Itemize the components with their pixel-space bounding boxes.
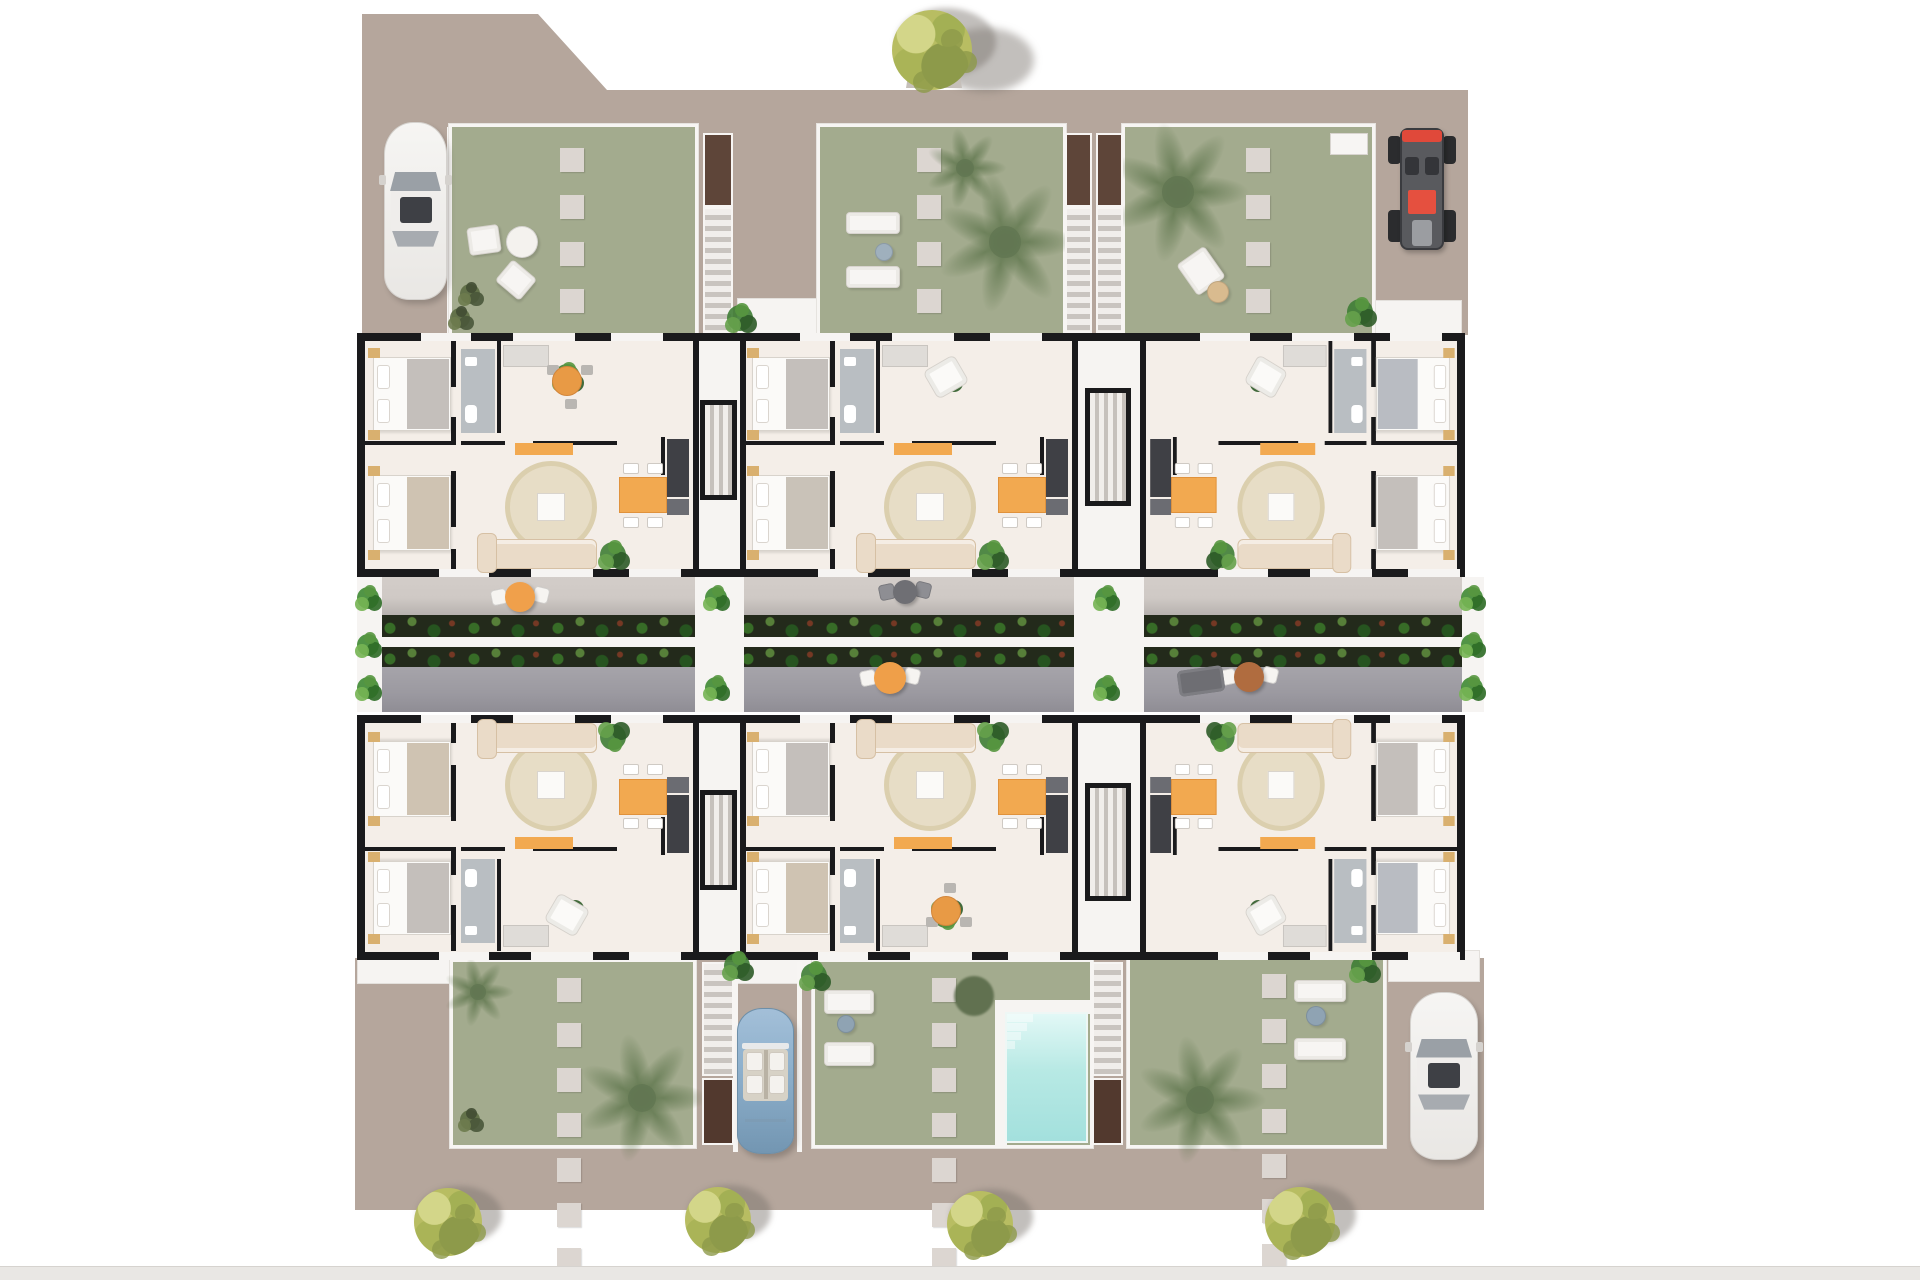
bed-pillow bbox=[1433, 519, 1445, 543]
sofa-side bbox=[856, 719, 876, 759]
dining-chair bbox=[1197, 517, 1212, 528]
terrace-plant-leaf bbox=[712, 585, 724, 597]
door-gap bbox=[531, 952, 593, 960]
terrace-walkway bbox=[357, 637, 1465, 647]
stepping-stone bbox=[557, 978, 581, 1002]
stepping-stone bbox=[917, 195, 941, 219]
walkway-plant-leaf bbox=[1345, 311, 1361, 327]
stepping-stone bbox=[932, 978, 956, 1002]
sofa-side bbox=[477, 719, 497, 759]
bed-pillow bbox=[377, 785, 390, 809]
car-trunk-line bbox=[745, 1119, 786, 1122]
interior-wall bbox=[876, 859, 880, 951]
kitchen-counter bbox=[667, 499, 689, 515]
door-gap bbox=[910, 569, 972, 577]
bed-pillow bbox=[756, 785, 769, 809]
tree-tuft bbox=[467, 1223, 486, 1242]
houseplant-leaf bbox=[612, 552, 630, 570]
terrace-plant-leaf bbox=[703, 687, 717, 701]
tree-tuft bbox=[964, 1241, 982, 1259]
bed-pillow bbox=[377, 869, 390, 893]
buggy-front-bar bbox=[1402, 130, 1442, 142]
dining-chair bbox=[623, 517, 639, 528]
bed-pillow bbox=[377, 365, 390, 389]
walkway-plant-leaf bbox=[732, 951, 746, 965]
stepping-stone bbox=[1262, 1109, 1286, 1133]
patio-chair bbox=[960, 917, 972, 927]
walkway-plant-leaf bbox=[735, 303, 749, 317]
bathroom-sink bbox=[844, 926, 856, 935]
stairs-bottom-1-landing bbox=[702, 1078, 734, 1145]
interior-wall bbox=[830, 341, 835, 387]
car-seat bbox=[746, 1052, 763, 1071]
sofa bbox=[862, 539, 976, 569]
bed-pillow bbox=[377, 749, 390, 773]
dining-chair bbox=[623, 764, 639, 775]
door-gap bbox=[892, 333, 954, 341]
patio-armchair bbox=[543, 892, 590, 938]
terrace-plant-leaf bbox=[1468, 675, 1480, 687]
bed-blanket bbox=[786, 863, 828, 933]
bed-pillow bbox=[756, 399, 769, 423]
bistro-table bbox=[893, 580, 917, 604]
interior-wall bbox=[1372, 847, 1457, 851]
bistro-table bbox=[1234, 662, 1264, 692]
nightstand bbox=[747, 816, 759, 826]
tv-sideboard bbox=[894, 837, 952, 849]
dining-table bbox=[998, 779, 1046, 815]
bed-blanket bbox=[1377, 863, 1417, 933]
houseplant-leaf bbox=[608, 540, 622, 554]
bed-pillow bbox=[1433, 903, 1445, 927]
palm-center bbox=[470, 984, 486, 1000]
garden-lounger bbox=[846, 266, 900, 288]
tree-tuft bbox=[702, 1237, 720, 1255]
car-console bbox=[764, 1050, 768, 1098]
kitchen-counter bbox=[1046, 795, 1068, 853]
door-gap bbox=[1008, 569, 1060, 577]
bathroom-toilet bbox=[1351, 405, 1362, 423]
garden-box bbox=[1330, 133, 1368, 155]
bed-blanket bbox=[407, 863, 449, 933]
bathroom-sink bbox=[1351, 357, 1362, 366]
bed-blanket bbox=[786, 359, 828, 429]
interior-wall bbox=[840, 441, 884, 445]
interior-wall bbox=[840, 847, 884, 851]
bathroom-toilet bbox=[844, 869, 856, 887]
unit-top-middle bbox=[744, 341, 1074, 569]
stepping-stone bbox=[1246, 289, 1270, 313]
nightstand bbox=[368, 852, 380, 862]
door-gap bbox=[439, 952, 489, 960]
nightstand bbox=[368, 732, 380, 742]
stepping-stone bbox=[560, 289, 584, 313]
stepping-stone bbox=[917, 289, 941, 313]
door-gap bbox=[1390, 715, 1442, 723]
garden-table bbox=[506, 226, 538, 258]
planter-strip bbox=[740, 615, 1074, 637]
door-gap bbox=[800, 333, 850, 341]
kitchen-counter bbox=[667, 777, 689, 793]
garden-plant-dry-leaf bbox=[469, 1118, 483, 1132]
door-gap bbox=[1408, 569, 1460, 577]
dining-table bbox=[998, 477, 1046, 513]
dining-chair bbox=[1026, 517, 1042, 528]
stepping-stone bbox=[557, 1068, 581, 1092]
bed-pillow bbox=[1433, 399, 1445, 423]
stepping-stone bbox=[1246, 195, 1270, 219]
bed-pillow bbox=[377, 519, 390, 543]
interior-wall bbox=[830, 723, 835, 743]
stairs-bottom-2-treads bbox=[1092, 962, 1123, 1076]
nightstand bbox=[368, 430, 380, 440]
garden-plant-leaf bbox=[1349, 967, 1365, 983]
door-gap bbox=[629, 952, 681, 960]
floor-plan-render: Top-down 3D render of a residential bloc… bbox=[0, 0, 1920, 1280]
tree-tuft bbox=[1283, 1240, 1303, 1260]
bed-blanket bbox=[1377, 359, 1417, 429]
dining-chair bbox=[1002, 517, 1018, 528]
white-car-top-left bbox=[384, 122, 447, 300]
garden-lounger bbox=[824, 1042, 874, 1066]
bed-blanket bbox=[1377, 477, 1417, 549]
interior-wall bbox=[1371, 471, 1376, 527]
bed-pillow bbox=[377, 903, 390, 927]
palm-center bbox=[1162, 176, 1193, 207]
terrace-plant-leaf bbox=[364, 632, 376, 644]
sofa bbox=[483, 723, 597, 753]
bed-pillow bbox=[756, 483, 769, 507]
houseplant-leaf bbox=[608, 738, 622, 752]
interior-wall bbox=[365, 847, 455, 851]
terrace-plant-leaf bbox=[712, 675, 724, 687]
interior-wall bbox=[830, 549, 835, 569]
kitchen-counter bbox=[1150, 777, 1171, 793]
kitchen-counter bbox=[1046, 777, 1068, 793]
car-sunroof bbox=[400, 197, 432, 224]
coffee-table bbox=[537, 493, 565, 521]
bottom-bar bbox=[0, 1266, 1920, 1280]
sofa bbox=[483, 539, 597, 569]
bathroom-sink bbox=[465, 357, 477, 366]
stepping-stone bbox=[1262, 1064, 1286, 1088]
stepping-stone bbox=[557, 1113, 581, 1137]
bed-pillow bbox=[1433, 869, 1445, 893]
terrace-plant-leaf bbox=[1102, 585, 1114, 597]
sofa bbox=[1237, 539, 1345, 569]
bathroom-sink bbox=[844, 357, 856, 366]
stairs-bottom-2-landing bbox=[1092, 1078, 1123, 1145]
nightstand bbox=[368, 466, 380, 476]
stepping-stone bbox=[560, 148, 584, 172]
dining-chair bbox=[1174, 463, 1189, 474]
houseplant-leaf bbox=[977, 722, 993, 738]
door-gap bbox=[990, 333, 1042, 341]
kitchen-counter bbox=[1046, 439, 1068, 497]
garden-plant-dry-leaf bbox=[448, 317, 461, 330]
patio-table bbox=[931, 896, 961, 926]
unit-top-right bbox=[1144, 341, 1457, 569]
garden-wall bbox=[797, 962, 802, 1152]
door-gap bbox=[1200, 333, 1250, 341]
terrace-plant-leaf bbox=[1471, 595, 1486, 610]
kitchen-counter bbox=[1150, 499, 1171, 515]
stepping-stone bbox=[557, 1158, 581, 1182]
dining-chair bbox=[647, 463, 663, 474]
dining-chair bbox=[1026, 764, 1042, 775]
bed-blanket bbox=[407, 359, 449, 429]
interior-wall bbox=[1324, 847, 1366, 851]
door-gap bbox=[611, 333, 663, 341]
interior-wall bbox=[744, 847, 834, 851]
garden-lounger bbox=[846, 212, 900, 234]
dining-chair bbox=[1174, 517, 1189, 528]
scene-layer bbox=[0, 0, 1920, 1280]
stairs-top-2-landing bbox=[1065, 133, 1092, 207]
coffee-table bbox=[537, 771, 565, 799]
houseplant-leaf bbox=[1221, 554, 1236, 570]
nightstand bbox=[1443, 934, 1454, 944]
unit-bottom-middle bbox=[744, 723, 1074, 951]
shrub bbox=[954, 976, 994, 1016]
terrace-plant-leaf bbox=[364, 675, 376, 687]
door-gap bbox=[910, 952, 972, 960]
garden-table bbox=[875, 243, 893, 261]
dining-chair bbox=[1002, 463, 1018, 474]
stepping-stone bbox=[932, 1068, 956, 1092]
stepping-stone bbox=[1262, 1154, 1286, 1178]
coffee-table bbox=[916, 771, 944, 799]
wardrobe bbox=[1282, 345, 1326, 367]
interior-wall bbox=[451, 549, 456, 569]
walkway bbox=[1374, 300, 1462, 334]
palm-center bbox=[956, 159, 974, 177]
door-gap bbox=[513, 715, 575, 723]
door-gap bbox=[421, 715, 471, 723]
nightstand bbox=[1443, 816, 1454, 826]
sofa-side bbox=[1332, 533, 1351, 573]
interior-wall bbox=[461, 847, 505, 851]
garden-plant-dry-leaf bbox=[459, 316, 473, 330]
door-gap bbox=[1390, 333, 1442, 341]
terrace-plant-leaf bbox=[355, 687, 369, 701]
nightstand bbox=[747, 732, 759, 742]
bed-pillow bbox=[756, 903, 769, 927]
bed-blanket bbox=[1377, 743, 1417, 815]
bathroom-toilet bbox=[1351, 869, 1362, 887]
dining-table bbox=[1171, 779, 1217, 815]
terrace-plant-leaf bbox=[1471, 642, 1486, 657]
sofa-side bbox=[477, 533, 497, 573]
bathroom-toilet bbox=[465, 405, 477, 423]
bathroom-sink bbox=[1351, 926, 1362, 935]
nightstand bbox=[1443, 466, 1454, 476]
nightstand bbox=[1443, 852, 1454, 862]
bathroom-toilet bbox=[465, 869, 477, 887]
door-gap bbox=[892, 715, 954, 723]
terrace-plant-leaf bbox=[1093, 687, 1107, 701]
stairs-top-3-treads bbox=[1096, 207, 1123, 333]
stepping-stone bbox=[560, 242, 584, 266]
nightstand bbox=[368, 816, 380, 826]
car-mirror bbox=[1476, 1042, 1483, 1052]
car-mirror bbox=[379, 175, 386, 185]
interior-wall bbox=[830, 847, 835, 875]
door-gap bbox=[629, 569, 681, 577]
stepping-stone bbox=[932, 1023, 956, 1047]
door-gap bbox=[421, 333, 471, 341]
pool-step bbox=[1007, 1023, 1027, 1031]
bathroom-toilet bbox=[844, 405, 856, 423]
nightstand bbox=[368, 934, 380, 944]
bistro-table bbox=[505, 582, 535, 612]
dining-chair bbox=[1197, 463, 1212, 474]
garden-lounger bbox=[1294, 980, 1346, 1002]
stepping-stone bbox=[1246, 148, 1270, 172]
garden-plant-leaf bbox=[1363, 965, 1381, 983]
walkway-plant-leaf bbox=[739, 315, 757, 333]
door-gap bbox=[1310, 952, 1372, 960]
interior-wall bbox=[1328, 341, 1332, 433]
planter-strip bbox=[740, 647, 1074, 667]
stepping-stone bbox=[932, 1113, 956, 1137]
bed-blanket bbox=[407, 743, 449, 815]
garden-plant-leaf bbox=[809, 961, 823, 975]
bed-pillow bbox=[756, 869, 769, 893]
bed-blanket bbox=[407, 477, 449, 549]
sofa bbox=[862, 723, 976, 753]
car-mirror bbox=[1405, 1042, 1412, 1052]
bed-pillow bbox=[756, 519, 769, 543]
planter-strip bbox=[1144, 615, 1462, 637]
tree-tuft bbox=[1320, 1223, 1340, 1243]
garden-lounger bbox=[466, 224, 502, 256]
car-windshield bbox=[1416, 1039, 1472, 1057]
stepping-stone bbox=[1262, 1019, 1286, 1043]
white-car-bottom-right bbox=[1410, 992, 1478, 1160]
blue-convertible-car bbox=[737, 1008, 794, 1154]
dining-chair bbox=[1174, 764, 1189, 775]
interior-wall bbox=[365, 441, 455, 445]
unit-bottom-right bbox=[1144, 723, 1457, 951]
buggy-seat bbox=[1405, 157, 1419, 175]
nightstand bbox=[747, 550, 759, 560]
stepping-stone bbox=[557, 1023, 581, 1047]
bed-blanket bbox=[786, 477, 828, 549]
dining-chair bbox=[1002, 764, 1018, 775]
houseplant-leaf bbox=[977, 554, 993, 570]
terrace-plant-leaf bbox=[1459, 687, 1473, 701]
nightstand bbox=[747, 852, 759, 862]
red-buggy bbox=[1388, 122, 1456, 258]
terrace-plant-leaf bbox=[355, 644, 369, 658]
door-gap bbox=[531, 569, 593, 577]
pool-step bbox=[1007, 1032, 1021, 1040]
stairs-top-1-landing bbox=[703, 133, 733, 207]
nightstand bbox=[1443, 550, 1454, 560]
tv-sideboard bbox=[1260, 443, 1315, 455]
dining-chair bbox=[647, 517, 663, 528]
stepping-stone bbox=[917, 242, 941, 266]
tree-tuft bbox=[455, 1204, 474, 1223]
tree-tuft bbox=[725, 1203, 743, 1221]
bed-pillow bbox=[377, 399, 390, 423]
interior-wall bbox=[830, 905, 835, 951]
walkway-plant-leaf bbox=[1355, 297, 1369, 311]
patio-armchair bbox=[922, 354, 969, 400]
dining-chair bbox=[1197, 764, 1212, 775]
dining-table bbox=[619, 477, 667, 513]
interior-wall bbox=[451, 765, 456, 821]
dining-chair bbox=[1002, 818, 1018, 829]
coffee-table bbox=[1267, 493, 1294, 521]
interior-wall bbox=[1371, 765, 1376, 821]
patio-table bbox=[552, 366, 582, 396]
sofa-side bbox=[1332, 719, 1351, 759]
buggy-tyre bbox=[1443, 136, 1456, 164]
terrace-plant-leaf bbox=[703, 597, 717, 611]
interior-wall bbox=[830, 765, 835, 821]
interior-wall bbox=[451, 847, 456, 875]
terrace-plant-leaf bbox=[1471, 685, 1486, 700]
bed-pillow bbox=[1433, 365, 1445, 389]
nightstand bbox=[747, 934, 759, 944]
nightstand bbox=[368, 348, 380, 358]
core-stairs bbox=[700, 400, 737, 500]
terrace-plant-leaf bbox=[1459, 644, 1473, 658]
kitchen-counter bbox=[667, 795, 689, 853]
door-gap bbox=[1218, 952, 1268, 960]
patio-armchair bbox=[1243, 354, 1288, 400]
terrace-plant-leaf bbox=[1102, 675, 1114, 687]
garden-lounger bbox=[1294, 1038, 1346, 1060]
bed-pillow bbox=[1433, 749, 1445, 773]
door-gap bbox=[1292, 333, 1354, 341]
bathroom-sink bbox=[465, 926, 477, 935]
terrace-plant-leaf bbox=[1468, 632, 1480, 644]
car-seat bbox=[769, 1075, 786, 1094]
nightstand bbox=[747, 430, 759, 440]
walkway-plant-leaf bbox=[725, 317, 741, 333]
dining-chair bbox=[623, 463, 639, 474]
wardrobe bbox=[1282, 925, 1326, 947]
terrace-plant-leaf bbox=[1468, 585, 1480, 597]
core-stairs bbox=[700, 790, 737, 890]
interior-wall bbox=[1371, 341, 1376, 387]
wardrobe bbox=[882, 925, 928, 947]
interior-wall bbox=[830, 471, 835, 527]
stairs-top-2-treads bbox=[1065, 207, 1092, 333]
bed-blanket bbox=[786, 743, 828, 815]
tv-sideboard bbox=[515, 837, 573, 849]
wardrobe bbox=[503, 345, 549, 367]
houseplant-leaf bbox=[1206, 552, 1223, 570]
unit-top-left bbox=[365, 341, 695, 569]
core-stairs bbox=[1085, 783, 1131, 901]
interior-wall bbox=[1371, 549, 1376, 569]
car-rear-window bbox=[1418, 1094, 1470, 1109]
kitchen-counter bbox=[667, 439, 689, 497]
terrace-plant-leaf bbox=[1459, 597, 1473, 611]
dining-chair bbox=[1174, 818, 1189, 829]
stepping-stone bbox=[557, 1203, 581, 1227]
houseplant-leaf bbox=[1221, 722, 1236, 738]
car-seat bbox=[746, 1075, 763, 1094]
houseplant-leaf bbox=[1213, 738, 1226, 752]
nightstand bbox=[1443, 348, 1454, 358]
bed-pillow bbox=[377, 483, 390, 507]
planter-strip bbox=[1144, 647, 1462, 667]
